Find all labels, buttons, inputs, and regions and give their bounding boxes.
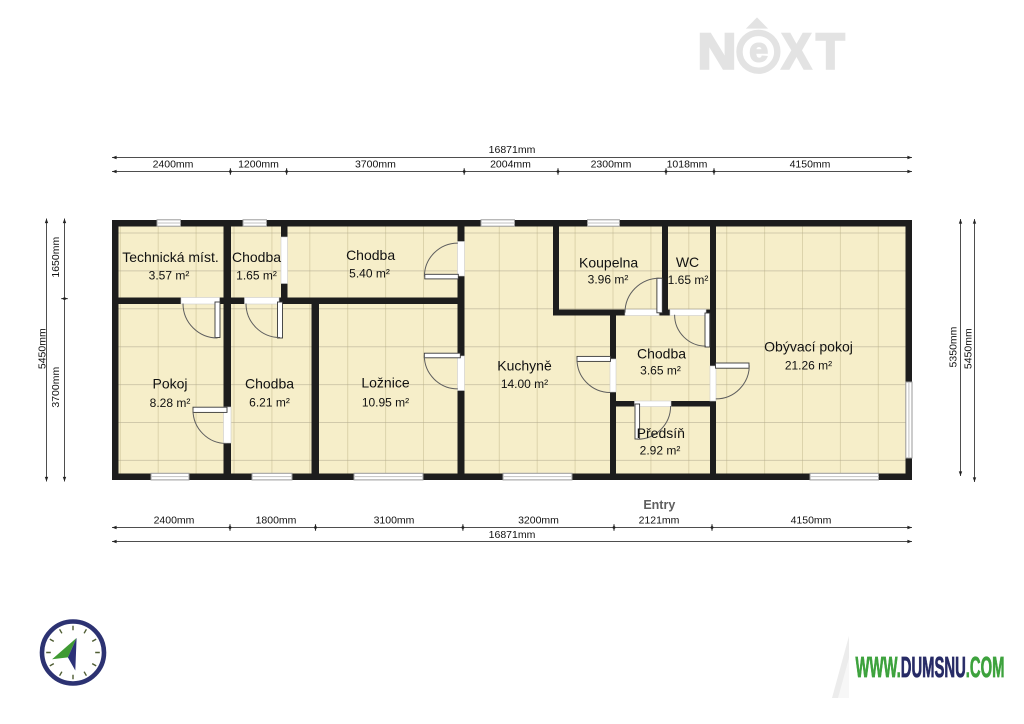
svg-text:1018mm: 1018mm xyxy=(667,158,708,170)
svg-text:5450mm: 5450mm xyxy=(962,328,974,369)
svg-text:3.57 m²: 3.57 m² xyxy=(149,269,190,283)
svg-text:3.96 m²: 3.96 m² xyxy=(588,273,629,287)
svg-text:WC: WC xyxy=(676,254,699,270)
svg-text:Pokoj: Pokoj xyxy=(152,376,187,392)
svg-text:2.92 m²: 2.92 m² xyxy=(640,444,681,458)
svg-text:e: e xyxy=(749,32,768,70)
svg-text:1.65 m²: 1.65 m² xyxy=(668,273,709,287)
svg-text:Entry: Entry xyxy=(643,498,675,512)
svg-text:X: X xyxy=(782,24,812,80)
svg-text:4150mm: 4150mm xyxy=(790,158,831,170)
svg-text:10.95 m²: 10.95 m² xyxy=(362,396,409,410)
svg-text:1200mm: 1200mm xyxy=(238,158,279,170)
svg-text:3700mm: 3700mm xyxy=(50,367,62,408)
svg-text:T: T xyxy=(816,24,845,80)
svg-text:14.00 m²: 14.00 m² xyxy=(501,377,548,391)
svg-text:Chodba: Chodba xyxy=(245,376,294,392)
svg-text:WWW.DUMSNU.COM: WWW.DUMSNU.COM xyxy=(856,651,1005,684)
svg-text:16871mm: 16871mm xyxy=(489,529,536,541)
svg-text:16871mm: 16871mm xyxy=(489,144,536,156)
svg-text:3200mm: 3200mm xyxy=(518,514,559,526)
svg-text:Chodba: Chodba xyxy=(346,247,395,263)
svg-text:1650mm: 1650mm xyxy=(50,237,62,278)
svg-text:2004mm: 2004mm xyxy=(490,158,531,170)
svg-text:Předsíň: Předsíň xyxy=(637,425,685,441)
svg-text:3100mm: 3100mm xyxy=(374,514,415,526)
svg-text:2400mm: 2400mm xyxy=(153,158,194,170)
svg-text:1800mm: 1800mm xyxy=(256,514,297,526)
svg-text:Ložnice: Ložnice xyxy=(361,375,409,391)
svg-text:Chodba: Chodba xyxy=(232,249,281,265)
svg-text:2400mm: 2400mm xyxy=(154,514,195,526)
svg-text:2121mm: 2121mm xyxy=(639,514,680,526)
svg-text:1.65 m²: 1.65 m² xyxy=(236,269,277,283)
svg-text:6.21 m²: 6.21 m² xyxy=(249,396,290,410)
svg-text:3.65 m²: 3.65 m² xyxy=(640,364,681,378)
svg-text:Koupelna: Koupelna xyxy=(579,254,638,270)
svg-text:2300mm: 2300mm xyxy=(591,158,632,170)
svg-text:Chodba: Chodba xyxy=(637,346,686,362)
svg-text:5.40 m²: 5.40 m² xyxy=(349,267,390,281)
svg-text:8.28 m²: 8.28 m² xyxy=(150,396,191,410)
svg-text:4150mm: 4150mm xyxy=(791,514,832,526)
svg-text:Kuchyně: Kuchyně xyxy=(497,358,552,374)
svg-text:Technická míst.: Technická míst. xyxy=(122,249,218,265)
svg-text:5350mm: 5350mm xyxy=(948,326,960,367)
svg-text:5450mm: 5450mm xyxy=(36,328,48,369)
svg-text:21.26 m²: 21.26 m² xyxy=(785,359,832,373)
svg-text:Obývací pokoj: Obývací pokoj xyxy=(764,339,853,355)
svg-text:3700mm: 3700mm xyxy=(355,158,396,170)
svg-text:N: N xyxy=(698,25,737,81)
